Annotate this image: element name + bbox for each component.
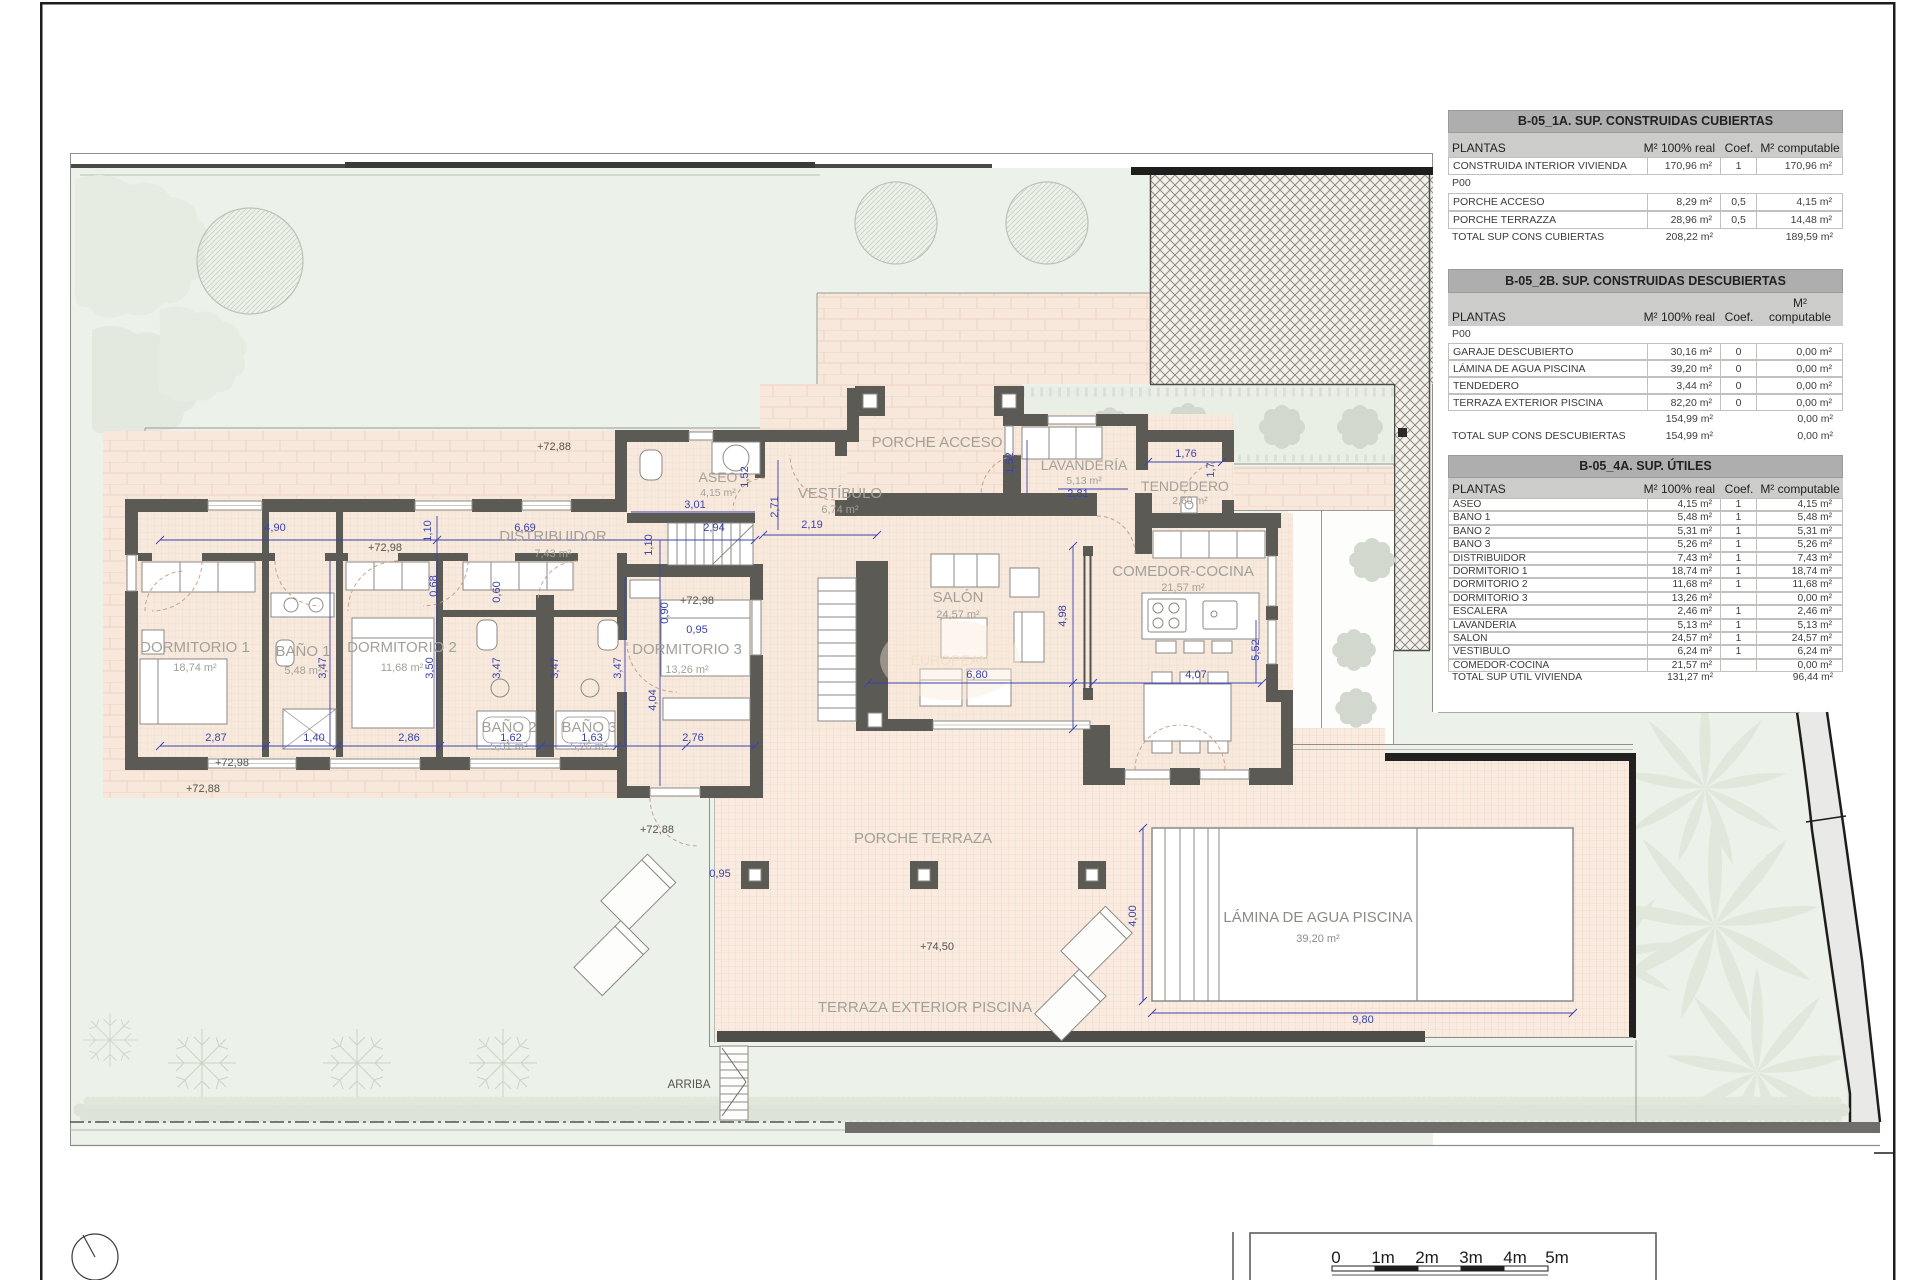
svg-text:2m: 2m [1415, 1248, 1439, 1267]
svg-text:2,81: 2,81 [1067, 488, 1088, 500]
svg-text:DORMITORIO 1: DORMITORIO 1 [140, 639, 250, 656]
svg-text:1,52: 1,52 [1004, 452, 1016, 473]
svg-text:+72,88: +72,88 [640, 824, 674, 836]
svg-text:2,71: 2,71 [769, 496, 781, 517]
svg-text:DORMITORIO 2: DORMITORIO 2 [347, 639, 457, 656]
svg-text:3,50: 3,50 [424, 657, 436, 678]
svg-text:9,80: 9,80 [1352, 1014, 1373, 1026]
svg-text:5,52: 5,52 [1250, 639, 1262, 660]
svg-text:3,47: 3,47 [491, 657, 503, 678]
svg-text:SALÓN: SALÓN [933, 589, 984, 606]
svg-text:6,80: 6,80 [966, 669, 987, 681]
svg-text:0,90: 0,90 [659, 602, 671, 623]
svg-text:+74,50: +74,50 [920, 941, 954, 953]
svg-text:4,04: 4,04 [647, 689, 659, 710]
svg-text:1m: 1m [1371, 1248, 1395, 1267]
svg-text:6,74 m²: 6,74 m² [821, 504, 859, 516]
svg-text:PORCHE ACCESO: PORCHE ACCESO [872, 434, 1003, 451]
svg-text:3m: 3m [1459, 1248, 1483, 1267]
svg-text:13,26 m²: 13,26 m² [665, 664, 709, 676]
svg-text:0,95: 0,95 [686, 624, 707, 636]
svg-text:4,90: 4,90 [264, 522, 285, 534]
svg-text:7,43 m²: 7,43 m² [534, 548, 572, 560]
svg-text:BAÑO 3: BAÑO 3 [561, 719, 616, 736]
svg-text:18,74 m²: 18,74 m² [173, 662, 217, 674]
svg-text:LÁMINA DE AGUA PISCINA: LÁMINA DE AGUA PISCINA [1223, 909, 1412, 926]
svg-text:3,47: 3,47 [549, 657, 561, 678]
svg-text:+72,88: +72,88 [537, 441, 571, 453]
svg-text:ARRIBA: ARRIBA [668, 1079, 711, 1091]
svg-text:TERRAZA EXTERIOR PISCINA: TERRAZA EXTERIOR PISCINA [818, 999, 1032, 1016]
svg-text:1,10: 1,10 [643, 534, 655, 555]
svg-text:2,60 m²: 2,60 m² [1172, 495, 1208, 507]
svg-text:5,48 m²: 5,48 m² [284, 665, 322, 677]
svg-text:1,76: 1,76 [1175, 448, 1196, 460]
svg-text:1,52: 1,52 [739, 466, 751, 487]
svg-text:3,01: 3,01 [684, 499, 705, 511]
svg-text:24,57 m²: 24,57 m² [936, 609, 980, 621]
svg-text:COMEDOR-COCINA: COMEDOR-COCINA [1112, 563, 1254, 580]
svg-text:0,95: 0,95 [709, 868, 730, 880]
svg-text:PORCHE TERRAZA: PORCHE TERRAZA [854, 830, 992, 847]
svg-text:11,68 m²: 11,68 m² [381, 662, 424, 674]
svg-text:5,13 m²: 5,13 m² [1066, 475, 1102, 487]
svg-text:21,57 m²: 21,57 m² [1161, 582, 1205, 594]
svg-text:2,87: 2,87 [205, 732, 226, 744]
svg-text:BAÑO 2: BAÑO 2 [481, 719, 536, 736]
svg-text:DISTRIBUIDOR: DISTRIBUIDOR [499, 528, 607, 545]
svg-text:0: 0 [1331, 1248, 1340, 1267]
svg-text:4m: 4m [1503, 1248, 1527, 1267]
svg-text:+72,88: +72,88 [186, 783, 220, 795]
svg-text:ASEO: ASEO [699, 469, 738, 485]
svg-text:4,00: 4,00 [1127, 905, 1139, 926]
svg-text:4,07: 4,07 [1185, 669, 1206, 681]
svg-text:4,15 m²: 4,15 m² [700, 487, 736, 499]
svg-text:+72,98: +72,98 [368, 542, 402, 554]
svg-text:3,47: 3,47 [612, 657, 624, 678]
svg-text:5,31 m²: 5,31 m² [490, 741, 528, 753]
svg-text:2,19: 2,19 [801, 519, 822, 531]
svg-text:2,76: 2,76 [682, 732, 703, 744]
svg-text:1,10: 1,10 [422, 520, 434, 541]
svg-text:5m: 5m [1545, 1248, 1569, 1267]
svg-text:LAVANDERÍA: LAVANDERÍA [1041, 457, 1128, 473]
svg-text:DORMITORIO 3: DORMITORIO 3 [632, 641, 742, 658]
svg-text:39,20 m²: 39,20 m² [1296, 933, 1340, 945]
svg-text:2,94: 2,94 [703, 522, 724, 534]
svg-text:1,40: 1,40 [303, 732, 324, 744]
svg-text:0,60: 0,60 [491, 581, 503, 602]
svg-text:+72,98: +72,98 [680, 595, 714, 607]
svg-text:0,68: 0,68 [428, 575, 440, 596]
svg-text:VESTÍBULO: VESTÍBULO [798, 485, 882, 502]
svg-text:5,26 m²: 5,26 m² [570, 741, 608, 753]
svg-text:4,98: 4,98 [1057, 605, 1069, 626]
svg-text:+72,98: +72,98 [215, 757, 249, 769]
svg-text:1,7: 1,7 [1205, 462, 1217, 477]
svg-text:2,86: 2,86 [398, 732, 419, 744]
svg-text:TENDEDERO: TENDEDERO [1141, 478, 1229, 494]
svg-text:BAÑO 1: BAÑO 1 [275, 643, 330, 660]
svg-text:EUROPEAN: EUROPEAN [911, 652, 990, 668]
